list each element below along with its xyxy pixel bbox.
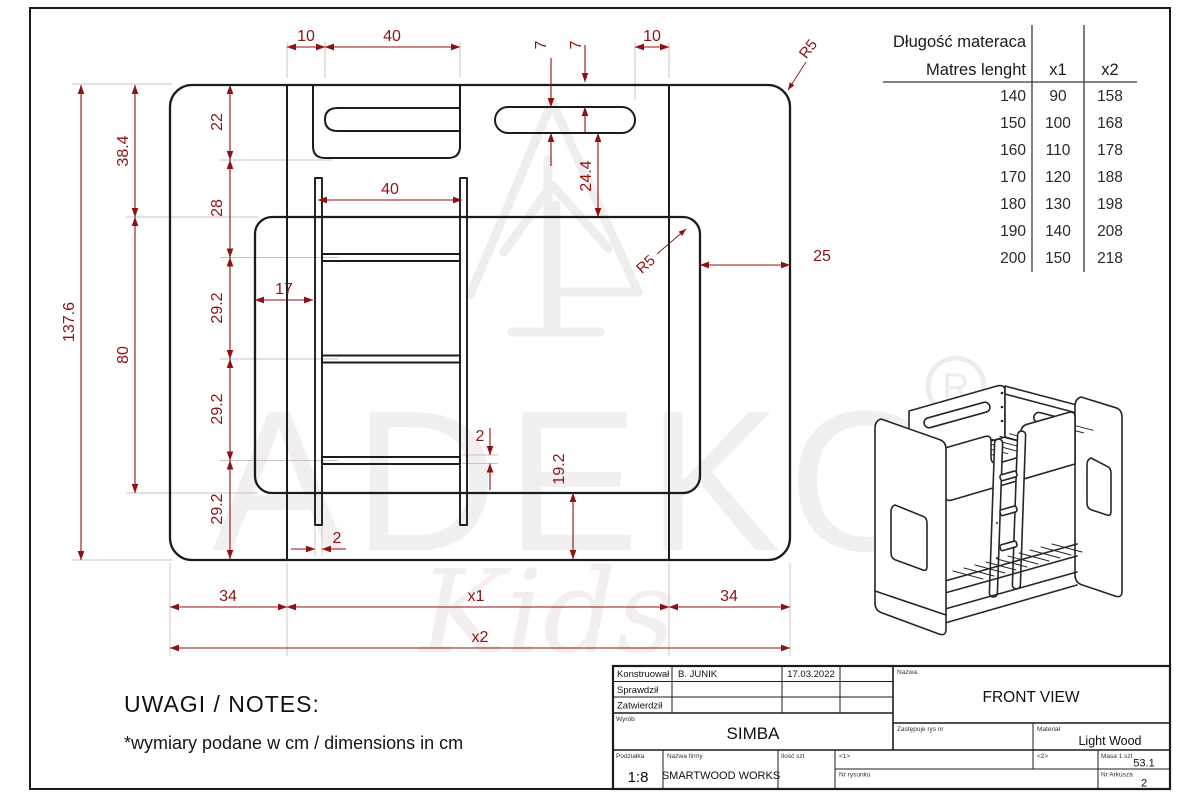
dim-panel-bottom: 19.2 xyxy=(551,453,568,484)
title-block: Konstruował B. JUNIK 17.03.2022 Sprawdzi… xyxy=(613,666,1170,790)
table-col-x2: x2 xyxy=(1101,61,1118,79)
svg-text:140: 140 xyxy=(1000,88,1026,105)
svg-text:160: 160 xyxy=(1000,142,1026,159)
svg-text:90: 90 xyxy=(1049,88,1067,105)
dim-top-handle-width: 40 xyxy=(383,28,401,45)
label-mass: Masa 1 szt xyxy=(1101,753,1133,760)
table-col-x1: x1 xyxy=(1049,61,1066,79)
dim-ladder-offset: 17 xyxy=(275,281,293,298)
technical-drawing-page: ADEKO R Kids xyxy=(0,0,1200,800)
svg-text:158: 158 xyxy=(1097,88,1123,105)
dim-right-offset: 25 xyxy=(813,248,831,265)
value-sheet: 2 xyxy=(1141,778,1147,790)
svg-text:110: 110 xyxy=(1046,142,1071,159)
label-field2: <2> xyxy=(1037,753,1048,760)
notes-heading: UWAGI / NOTES: xyxy=(124,691,320,717)
svg-text:200: 200 xyxy=(1000,250,1026,267)
dim-ladder-width: 40 xyxy=(381,181,399,198)
notes: UWAGI / NOTES: *wymiary podane w cm / di… xyxy=(124,691,463,753)
label-company: Nazwa firmy xyxy=(667,753,704,760)
dim-top-left-offset: 10 xyxy=(297,28,315,45)
dim-slot-top-offset: 7 xyxy=(568,40,585,49)
svg-text:140: 140 xyxy=(1045,223,1071,240)
dim-chain-29a: 29.2 xyxy=(209,292,226,323)
dim-total-height: 137.6 xyxy=(61,302,78,342)
value-product: SIMBA xyxy=(727,724,781,743)
value-company: SMARTWOOD WORKS xyxy=(662,770,780,782)
dim-bottom-right: 34 xyxy=(720,588,738,605)
svg-text:208: 208 xyxy=(1097,223,1123,240)
kids-script-watermark: Kids xyxy=(418,546,675,680)
drawing-canvas: ADEKO R Kids xyxy=(0,0,1200,800)
value-material: Light Wood xyxy=(1078,734,1141,748)
dim-rung-thickness: 2 xyxy=(476,428,485,445)
label-material: Materiał xyxy=(1037,726,1061,733)
label-qty: Ilość szt xyxy=(781,753,805,760)
dim-bottom-total: x2 xyxy=(472,629,489,646)
table-header-pl: Długość materaca xyxy=(893,33,1027,51)
dim-slot-to-panel: 24.4 xyxy=(578,160,595,191)
svg-text:188: 188 xyxy=(1097,169,1123,186)
label-product: Wyrób xyxy=(616,716,635,723)
value-scale: 1:8 xyxy=(628,769,649,786)
table-rows: 140 90 158 150 100 168 160 110 178 170 1… xyxy=(1000,88,1123,267)
label-drawing-no: Nr rysunku xyxy=(839,772,871,779)
ladder-rung-2 xyxy=(322,356,460,363)
label-sheet-no: Nr Arkusza xyxy=(1101,772,1133,779)
svg-text:168: 168 xyxy=(1097,115,1123,132)
svg-text:120: 120 xyxy=(1045,169,1071,186)
dim-lower-panel: 80 xyxy=(115,346,132,364)
label-approved: Zatwierdził xyxy=(617,701,663,712)
svg-text:170: 170 xyxy=(1000,169,1026,186)
dim-stile-thickness: 2 xyxy=(333,530,342,547)
svg-text:178: 178 xyxy=(1097,142,1123,159)
dim-chain-22: 22 xyxy=(209,113,226,131)
svg-text:218: 218 xyxy=(1097,250,1123,267)
svg-text:180: 180 xyxy=(1000,196,1026,213)
left-handle-slot xyxy=(325,108,460,131)
dim-bottom-left: 34 xyxy=(219,588,237,605)
svg-text:190: 190 xyxy=(1000,223,1026,240)
dim-top-right-offset: 10 xyxy=(643,28,661,45)
dim-bottom-center: x1 xyxy=(468,588,485,605)
value-date: 17.03.2022 xyxy=(787,669,835,680)
svg-text:130: 130 xyxy=(1045,196,1071,213)
label-name: Nazwa: xyxy=(897,669,919,676)
isometric-view xyxy=(875,386,1122,635)
ladder-rung-1 xyxy=(322,254,460,261)
dim-inner-radius: R5 xyxy=(633,252,659,277)
label-designed: Konstruował xyxy=(617,669,670,680)
value-mass: 53.1 xyxy=(1133,758,1154,770)
label-scale: Podziałka xyxy=(616,753,645,760)
table-header-en: Matres lenght xyxy=(926,61,1026,79)
label-replaces: Zastępuje rys nr xyxy=(897,726,944,733)
svg-text:198: 198 xyxy=(1097,196,1123,213)
notes-line: *wymiary podane w cm / dimensions in cm xyxy=(124,733,463,753)
dim-slot-height: 7 xyxy=(533,40,550,49)
dim-upper-section: 38.4 xyxy=(115,135,132,166)
dim-outer-radius: R5 xyxy=(796,36,821,62)
value-designed-by: B. JUNIK xyxy=(678,669,718,680)
label-field1: <1> xyxy=(839,753,850,760)
svg-text:100: 100 xyxy=(1045,115,1071,132)
dim-chain-29c: 29.2 xyxy=(209,493,226,524)
mattress-length-table: Długość materaca Matres lenght x1 x2 140… xyxy=(883,25,1137,272)
lower-slat-edge xyxy=(945,544,1077,581)
value-view-name: FRONT VIEW xyxy=(982,689,1079,706)
dim-chain-29b: 29.2 xyxy=(209,393,226,424)
svg-text:150: 150 xyxy=(1045,250,1071,267)
label-checked: Sprawdził xyxy=(617,685,659,696)
dim-chain-28: 28 xyxy=(209,199,226,217)
svg-text:150: 150 xyxy=(1000,115,1026,132)
top-pocket-cutout xyxy=(313,85,460,158)
